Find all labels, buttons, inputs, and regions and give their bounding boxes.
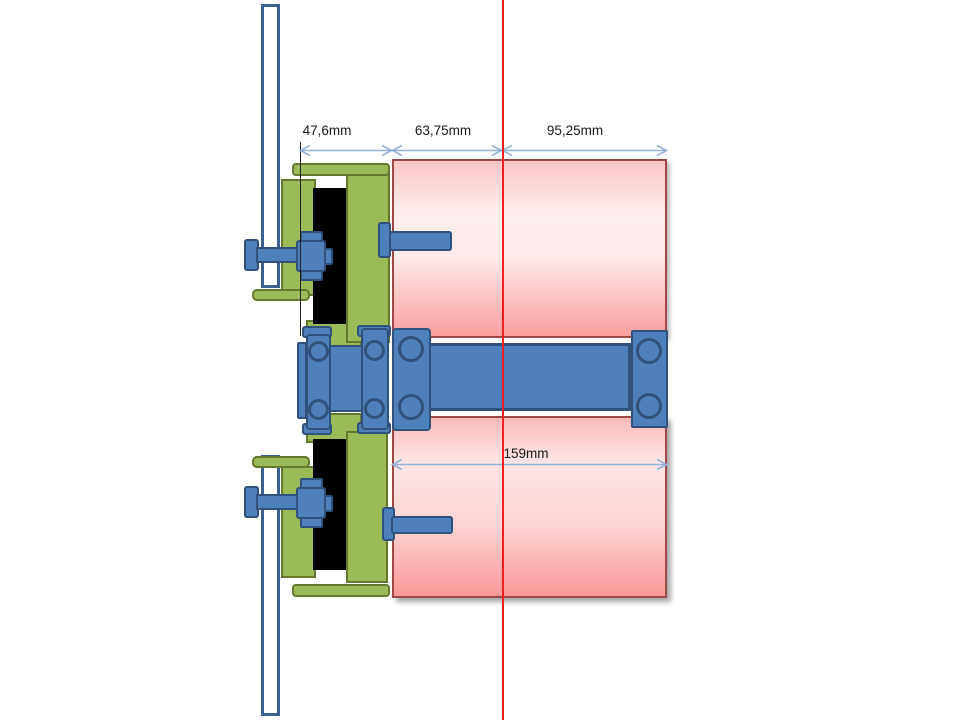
technical-drawing-canvas: 47,6mm 63,75mm 95,25mm 159mm <box>0 0 960 720</box>
centerline <box>502 0 504 720</box>
dimension-label-95-25: 95,25mm <box>515 123 635 139</box>
dimension-label-47-6: 47,6mm <box>267 123 387 139</box>
dimension-lines-svg <box>0 0 960 720</box>
dimension-label-159: 159mm <box>466 446 586 462</box>
dimension-label-63-75: 63,75mm <box>383 123 503 139</box>
